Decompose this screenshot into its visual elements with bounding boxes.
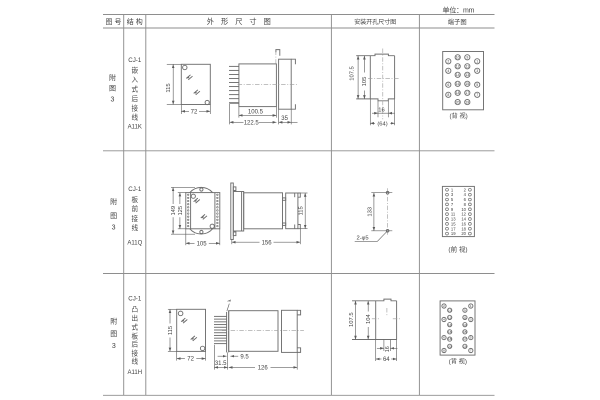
svg-text:附: 附 bbox=[110, 197, 117, 206]
svg-text:后: 后 bbox=[132, 339, 139, 348]
svg-text:嵌: 嵌 bbox=[132, 66, 139, 74]
svg-text:5: 5 bbox=[470, 336, 472, 340]
svg-text:式: 式 bbox=[132, 322, 139, 331]
svg-text:2-φ5: 2-φ5 bbox=[357, 236, 369, 242]
svg-text:4: 4 bbox=[443, 318, 445, 322]
svg-text:8: 8 bbox=[443, 349, 445, 353]
svg-text:板: 板 bbox=[132, 331, 139, 340]
svg-text:A11K: A11K bbox=[128, 124, 142, 130]
svg-text:18: 18 bbox=[448, 337, 452, 341]
svg-text:9.5: 9.5 bbox=[240, 354, 249, 360]
svg-text:图: 图 bbox=[109, 85, 116, 93]
svg-text:安装开孔尺寸图: 安装开孔尺寸图 bbox=[354, 18, 396, 26]
svg-text:5: 5 bbox=[476, 83, 478, 87]
svg-text:图: 图 bbox=[110, 330, 117, 338]
svg-text:3: 3 bbox=[112, 225, 116, 232]
svg-text:A11Q: A11Q bbox=[127, 240, 142, 246]
svg-text:14: 14 bbox=[448, 323, 452, 327]
svg-text:1: 1 bbox=[470, 304, 472, 308]
svg-text:CJ-1: CJ-1 bbox=[128, 295, 142, 302]
svg-text:17: 17 bbox=[465, 91, 469, 95]
svg-text:122.5: 122.5 bbox=[244, 120, 260, 126]
svg-text:2: 2 bbox=[443, 304, 445, 308]
svg-text:11: 11 bbox=[463, 316, 466, 320]
svg-text:6: 6 bbox=[447, 83, 449, 87]
svg-text:115: 115 bbox=[166, 83, 172, 92]
svg-text:(64): (64) bbox=[377, 121, 387, 127]
svg-text:19: 19 bbox=[451, 231, 456, 236]
svg-text:图: 图 bbox=[110, 212, 117, 220]
svg-text:13: 13 bbox=[465, 73, 469, 77]
svg-text:156: 156 bbox=[262, 240, 273, 246]
svg-text:16: 16 bbox=[448, 330, 452, 334]
svg-text:115: 115 bbox=[299, 206, 305, 215]
svg-text:单位：mm: 单位：mm bbox=[443, 5, 475, 14]
svg-text:接: 接 bbox=[132, 348, 139, 357]
svg-text:式: 式 bbox=[132, 84, 139, 93]
svg-text:19: 19 bbox=[465, 100, 469, 104]
svg-text:A11H: A11H bbox=[128, 370, 143, 376]
svg-text:3: 3 bbox=[470, 318, 472, 322]
svg-text:35: 35 bbox=[281, 116, 288, 122]
svg-text:20: 20 bbox=[461, 231, 466, 236]
svg-text:100.5: 100.5 bbox=[248, 110, 264, 116]
svg-text:线: 线 bbox=[132, 223, 139, 232]
svg-text:3: 3 bbox=[111, 96, 115, 103]
svg-text:10: 10 bbox=[456, 56, 460, 60]
svg-text:接: 接 bbox=[132, 214, 139, 223]
svg-text:7: 7 bbox=[470, 349, 472, 353]
svg-text:105: 105 bbox=[362, 77, 368, 87]
svg-text:15: 15 bbox=[465, 82, 469, 86]
svg-text:31.5: 31.5 bbox=[215, 361, 227, 367]
svg-text:20: 20 bbox=[448, 344, 452, 348]
svg-text:附: 附 bbox=[110, 317, 117, 326]
svg-text:9: 9 bbox=[466, 56, 468, 60]
svg-text:64: 64 bbox=[383, 357, 390, 363]
svg-text:(前 视): (前 视) bbox=[448, 245, 467, 254]
svg-text:后: 后 bbox=[132, 94, 139, 103]
svg-text:CJ-1: CJ-1 bbox=[128, 57, 142, 64]
svg-text:入: 入 bbox=[132, 77, 139, 84]
svg-text:7: 7 bbox=[476, 93, 478, 97]
svg-text:端子图: 端子图 bbox=[448, 17, 467, 26]
svg-text:19: 19 bbox=[463, 344, 467, 348]
svg-text:8: 8 bbox=[447, 93, 449, 97]
svg-text:16: 16 bbox=[378, 108, 384, 114]
svg-text:9: 9 bbox=[464, 308, 466, 312]
svg-text:13: 13 bbox=[463, 323, 467, 327]
svg-text:149: 149 bbox=[171, 206, 177, 216]
svg-text:12: 12 bbox=[448, 316, 452, 320]
svg-text:线: 线 bbox=[132, 356, 139, 365]
svg-text:17: 17 bbox=[463, 337, 467, 341]
svg-text:前: 前 bbox=[132, 204, 139, 213]
svg-text:板: 板 bbox=[132, 195, 139, 204]
svg-text:107.5: 107.5 bbox=[349, 66, 355, 81]
svg-text:115: 115 bbox=[168, 326, 174, 335]
svg-text:出: 出 bbox=[132, 313, 139, 322]
svg-text:11: 11 bbox=[465, 65, 469, 69]
svg-text:4: 4 bbox=[447, 69, 449, 73]
svg-text:结构: 结构 bbox=[127, 17, 143, 26]
svg-text:125: 125 bbox=[178, 206, 184, 216]
svg-text:18: 18 bbox=[456, 91, 460, 95]
svg-text:2: 2 bbox=[447, 60, 449, 64]
svg-text:15: 15 bbox=[463, 330, 467, 334]
svg-text:图号: 图号 bbox=[106, 18, 122, 26]
svg-text:133: 133 bbox=[368, 207, 374, 217]
svg-text:126: 126 bbox=[258, 366, 269, 372]
svg-text:3: 3 bbox=[112, 343, 116, 350]
svg-text:72: 72 bbox=[191, 109, 198, 115]
svg-text:1: 1 bbox=[476, 60, 478, 64]
svg-text:20: 20 bbox=[456, 100, 460, 104]
svg-text:线: 线 bbox=[132, 112, 139, 121]
svg-text:16: 16 bbox=[456, 82, 460, 86]
svg-text:14: 14 bbox=[456, 73, 460, 77]
svg-text:外 形 尺 寸 图: 外 形 尺 寸 图 bbox=[207, 17, 271, 26]
svg-text:(背 视): (背 视) bbox=[449, 358, 467, 366]
svg-text:附: 附 bbox=[109, 73, 116, 82]
svg-text:CJ-1: CJ-1 bbox=[128, 186, 142, 193]
svg-text:107.5: 107.5 bbox=[349, 312, 355, 327]
svg-text:凸: 凸 bbox=[132, 305, 139, 313]
svg-text:105: 105 bbox=[197, 241, 208, 247]
svg-text:10: 10 bbox=[448, 308, 452, 312]
svg-text:(背 视): (背 视) bbox=[449, 112, 467, 120]
svg-text:12: 12 bbox=[456, 65, 460, 69]
svg-text:3: 3 bbox=[476, 69, 478, 73]
svg-text:72: 72 bbox=[187, 357, 194, 363]
svg-text:16: 16 bbox=[385, 346, 391, 352]
svg-text:6: 6 bbox=[443, 336, 445, 340]
svg-text:接: 接 bbox=[132, 103, 139, 112]
svg-text:104: 104 bbox=[366, 313, 372, 323]
